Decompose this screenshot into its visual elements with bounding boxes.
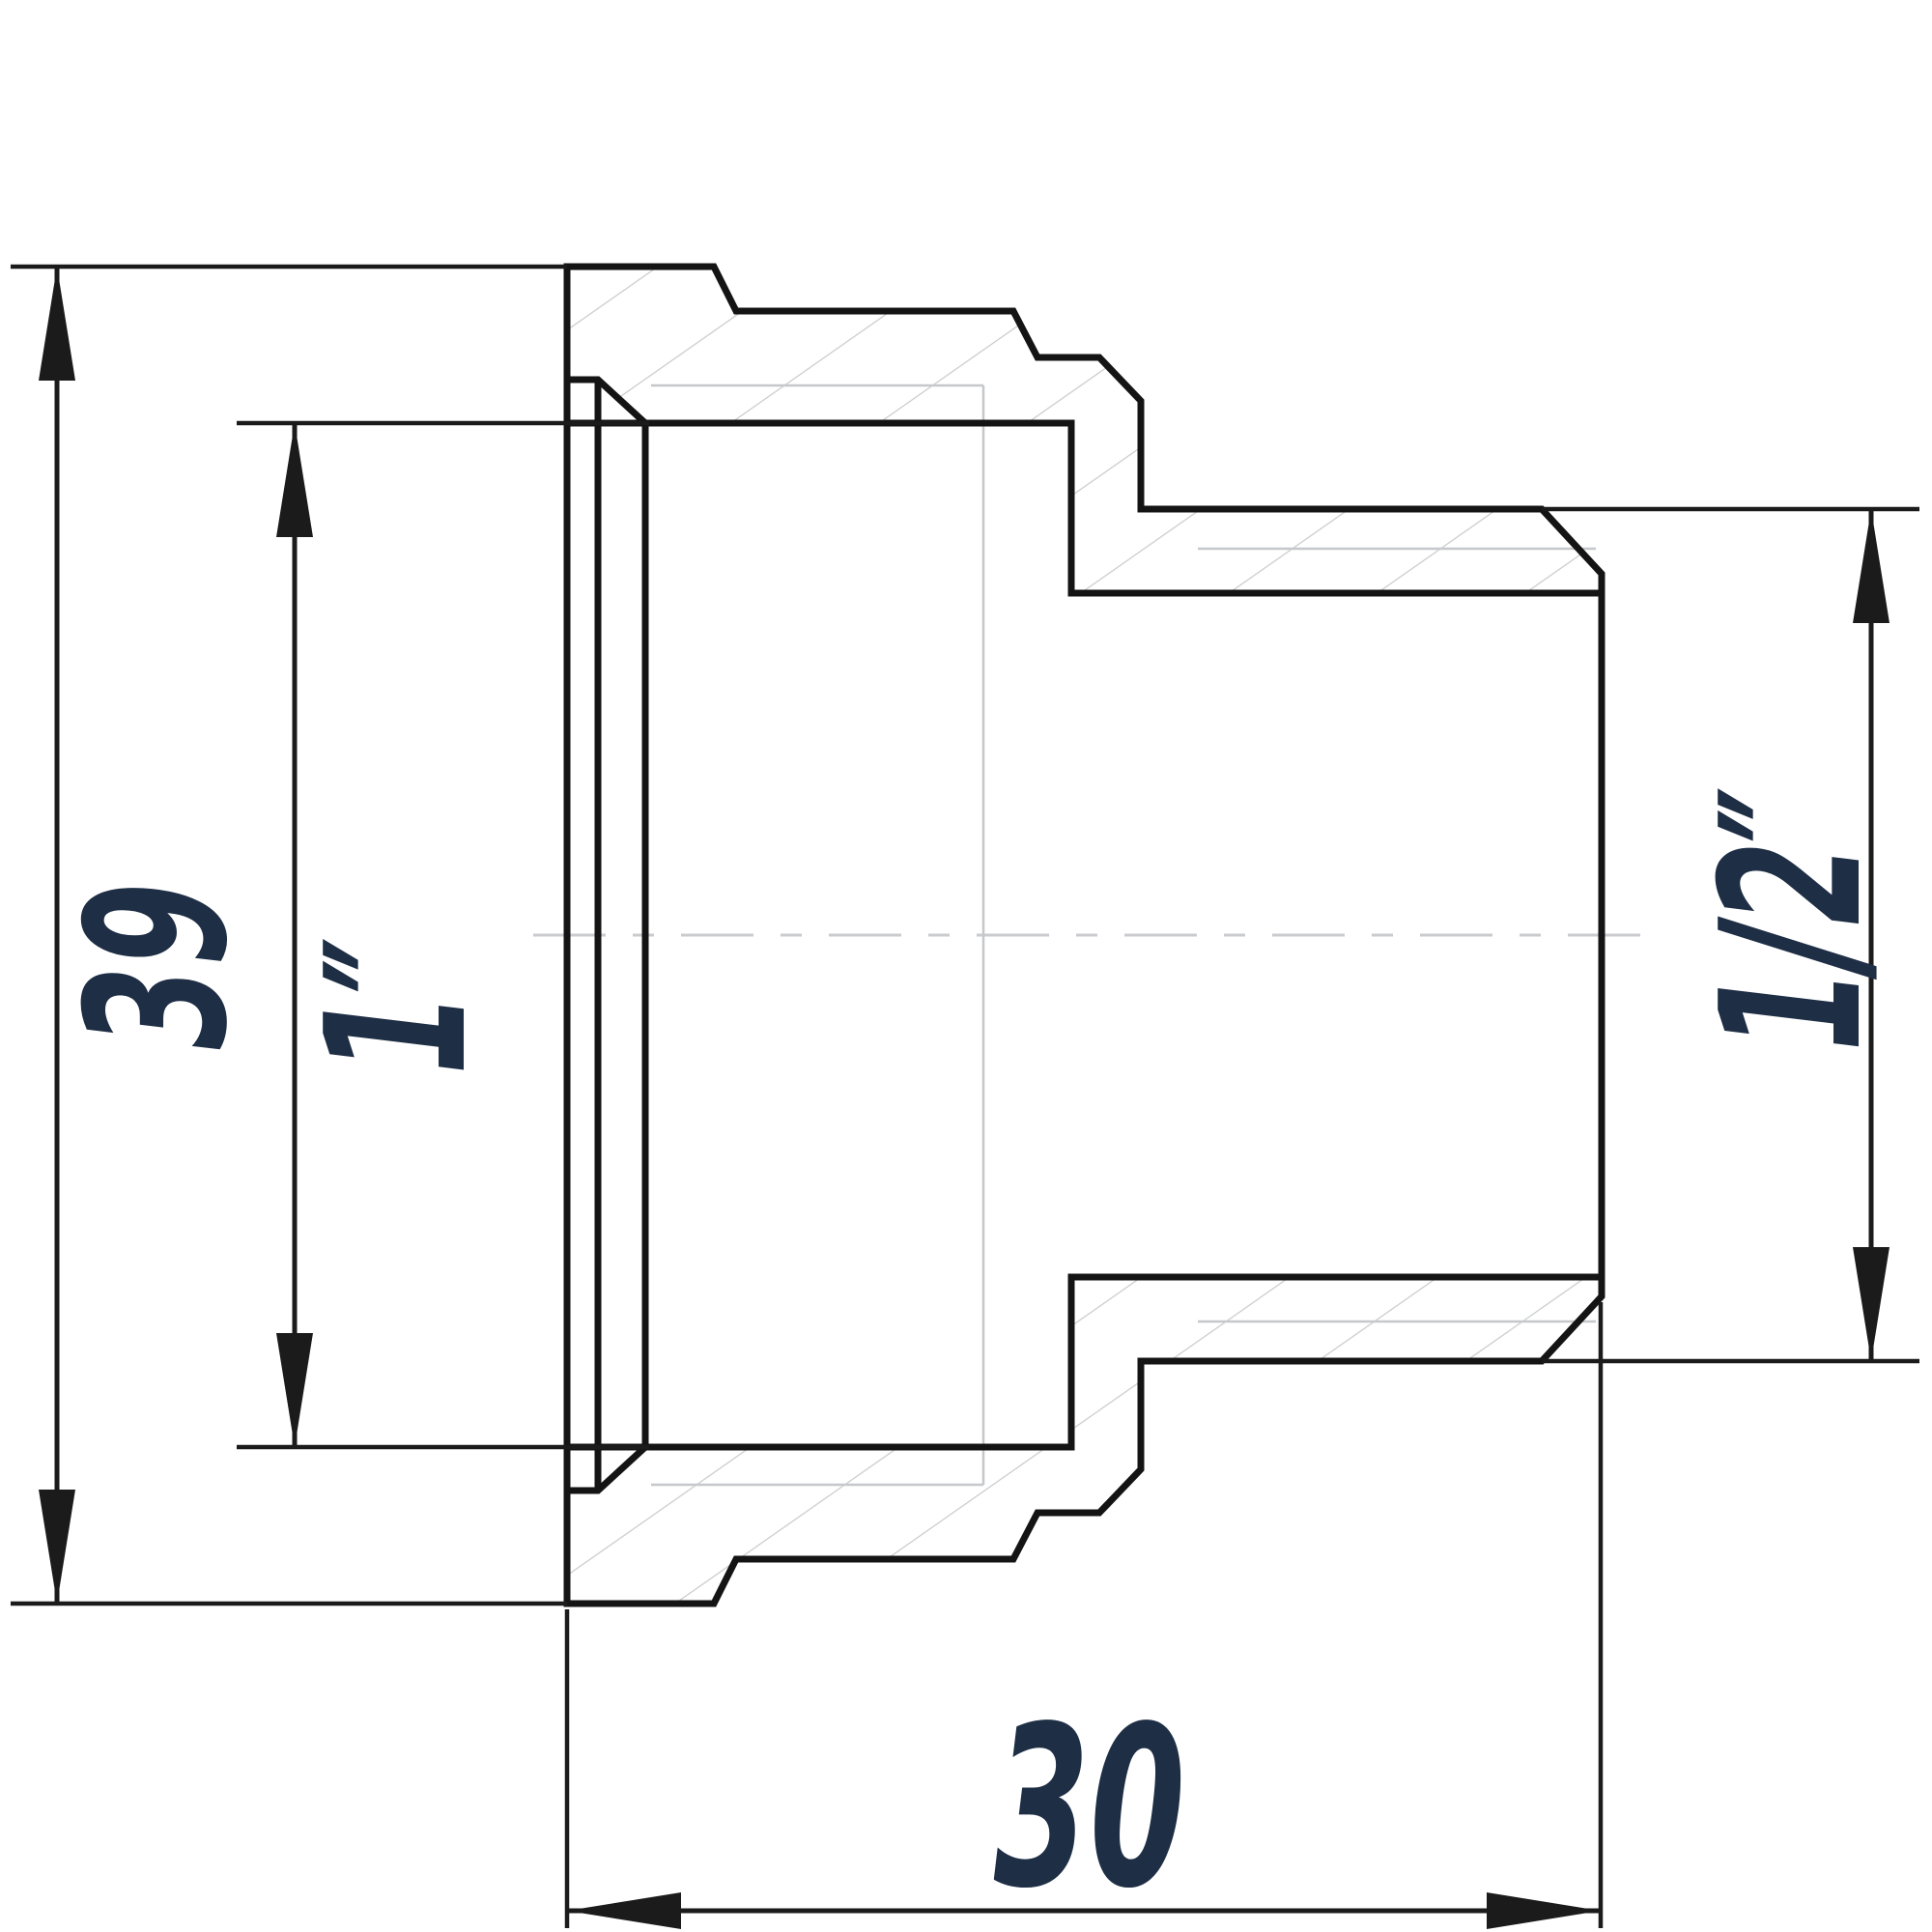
dim-label-30: 30 — [994, 1679, 1185, 1932]
dim-label-half-in: 1/2″ — [1681, 787, 1905, 1051]
technical-drawing: 39 1″ 1/2″ 30 — [0, 0, 1932, 1932]
dim-label-39: 39 — [46, 883, 270, 1050]
drawing-canvas: 39 1″ 1/2″ 30 — [0, 0, 1932, 1932]
dim-label-1in: 1″ — [286, 938, 510, 1075]
